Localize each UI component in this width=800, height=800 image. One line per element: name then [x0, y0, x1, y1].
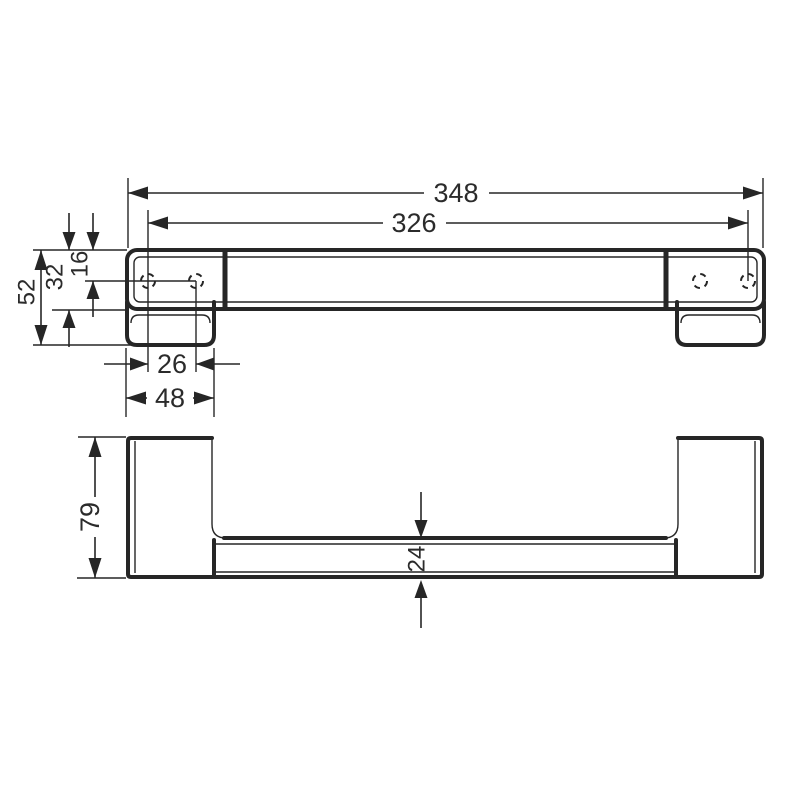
plan-view [128, 438, 762, 577]
arrowhead-up [89, 437, 102, 457]
dim-label-end-height: 52 [14, 279, 41, 306]
front-view [85, 250, 764, 345]
arrowhead-down [35, 325, 48, 345]
dimension-projection: 79 [75, 437, 126, 578]
arrowhead-left [196, 358, 214, 371]
dim-label-bar-face-height: 32 [42, 264, 69, 291]
arrowhead-left [126, 392, 146, 405]
arrowhead-up [415, 580, 428, 598]
dimension-drawing: 348 326 52 32 16 [0, 0, 800, 800]
arrowhead-up [63, 310, 76, 328]
right-foot-inner-edge [681, 315, 760, 323]
dimension-hole-pair: 26 [104, 281, 240, 379]
dimension-left-stack: 52 32 16 [14, 213, 133, 347]
arrowhead-right [728, 217, 748, 230]
arrowhead-right [194, 392, 214, 405]
arrowhead-up [87, 281, 100, 299]
arrowhead-left [148, 217, 168, 230]
dim-label-overall-width: 348 [433, 178, 478, 208]
right-post-inner-edge [664, 438, 678, 538]
technical-drawing-canvas: 348 326 52 32 16 [0, 0, 800, 800]
dimension-bar-thickness: 24 [404, 492, 431, 628]
dimension-overall-width: 348 [128, 178, 763, 248]
left-post-inner-edge [212, 438, 226, 538]
dim-label-bar-thickness: 24 [404, 546, 431, 573]
dim-label-endcap-width: 48 [155, 383, 185, 413]
mounting-hole [693, 274, 707, 288]
arrowhead-left [128, 187, 148, 200]
dim-label-hole-pair: 26 [157, 349, 187, 379]
arrowhead-down [87, 232, 100, 250]
dim-label-hole-offset: 16 [67, 251, 94, 278]
arrowhead-right [743, 187, 763, 200]
arrowhead-down [415, 520, 428, 538]
arrowhead-down [89, 558, 102, 578]
u-profile-outer-outline [128, 438, 762, 577]
dim-label-hole-span: 326 [391, 208, 436, 238]
left-foot-inner-edge [131, 315, 210, 323]
arrowhead-down [63, 232, 76, 250]
arrowhead-right [130, 358, 148, 371]
dim-label-projection: 79 [75, 502, 105, 532]
dimension-hole-span: 326 [148, 208, 748, 372]
